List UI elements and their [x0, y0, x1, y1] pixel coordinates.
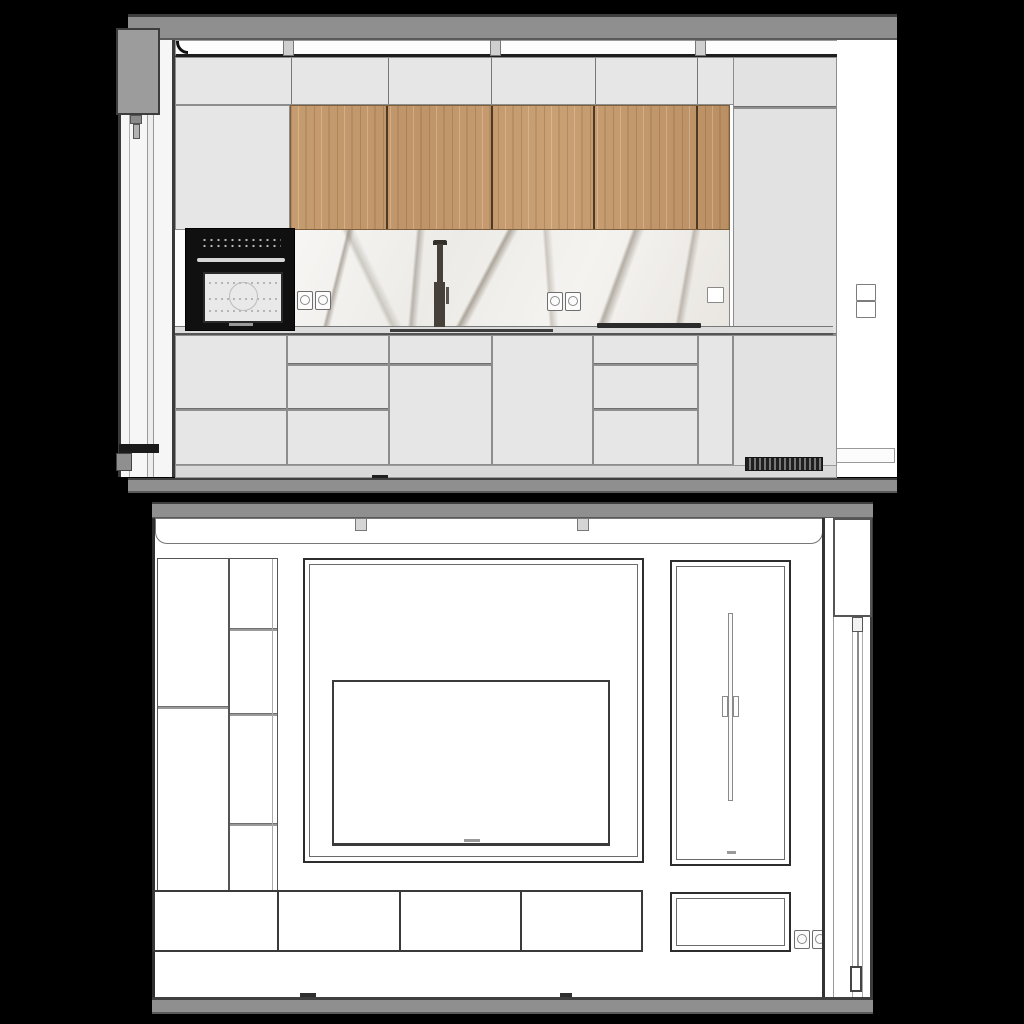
shelf-line — [230, 628, 277, 631]
panel-divider — [697, 58, 698, 104]
sink-inset-line — [390, 329, 553, 332]
shelf-frame-line — [272, 559, 273, 894]
media-ceiling-band — [152, 502, 873, 518]
cove-joint-tab — [283, 40, 294, 56]
media-base-doors — [153, 890, 643, 952]
backsplash-switch — [707, 287, 724, 303]
cove-joint-tab — [695, 40, 706, 56]
open-shelf-unit — [229, 558, 278, 895]
cove-joint-tab — [490, 40, 501, 56]
socket-outlet — [547, 292, 563, 311]
base-unit-drawers — [593, 335, 698, 465]
oven-window — [203, 272, 283, 323]
wood-door-gap — [386, 106, 388, 229]
oven-control-panel — [201, 237, 281, 249]
media-floor-band — [152, 997, 873, 1014]
built-in-oven — [185, 228, 295, 331]
oven-brand-mark — [229, 323, 253, 326]
framed-base-panel — [670, 892, 791, 952]
door-divider — [520, 892, 522, 950]
wall-light-switch — [856, 284, 876, 301]
tall-cabinet-column — [733, 57, 837, 466]
double-socket — [547, 292, 581, 311]
tall-cabinet-door-left — [175, 105, 290, 230]
socket-outlet — [794, 930, 810, 949]
drawing-canvas — [0, 0, 1024, 1024]
tv-brand-mark — [464, 839, 480, 842]
cooktop-inset-line — [597, 323, 701, 328]
double-socket — [297, 291, 331, 310]
right-wall — [837, 40, 897, 477]
drawer-divider — [288, 408, 388, 411]
panel-divider — [158, 706, 228, 709]
media-cove-strip — [155, 518, 823, 544]
window-bottom-handle — [119, 444, 159, 453]
door-divider — [277, 892, 279, 950]
door-divider — [399, 892, 401, 950]
blind-cord-lock — [130, 115, 142, 124]
blind-cord-lock — [852, 617, 863, 632]
cove-joint-tab — [577, 518, 589, 531]
blind-cord-weight — [850, 966, 862, 992]
wood-wall-cabinets — [290, 105, 730, 230]
door-bottom-mark — [727, 851, 736, 854]
oven-fan-circle — [229, 282, 258, 311]
right-wall-skirting — [834, 448, 895, 463]
base-unit-drawers — [287, 335, 389, 465]
kitchen-floor-band — [128, 478, 897, 493]
drawer-divider — [176, 408, 286, 411]
base-unit-door — [492, 335, 593, 465]
blind-cord — [857, 617, 859, 972]
panel-divider — [491, 58, 492, 104]
left-wall-panels — [157, 558, 229, 895]
socket-outlet — [315, 291, 331, 310]
wood-door-gap — [593, 106, 595, 229]
drawer-divider — [390, 363, 491, 366]
door-handle-grip — [722, 696, 728, 717]
base-unit-sink — [389, 335, 492, 465]
plinth — [175, 465, 837, 478]
faucet-body — [434, 282, 445, 327]
door-handle-grip — [733, 696, 739, 717]
window-sill-block — [116, 453, 132, 471]
shelf-line — [230, 823, 277, 826]
base-unit-drawers — [175, 335, 287, 465]
panel-divider — [291, 58, 292, 104]
panel-divider — [734, 106, 836, 109]
kitchen-ceiling-band — [128, 14, 897, 40]
socket-outlet — [297, 291, 313, 310]
roller-blind-box-right — [833, 518, 872, 617]
plinth-vent-grille — [745, 457, 823, 471]
faucet-lever — [446, 287, 449, 304]
wood-door-gap — [491, 106, 493, 229]
drawer-divider — [594, 408, 697, 411]
wall-light-switch — [856, 301, 876, 318]
wood-door-gap — [696, 106, 698, 229]
base-unit-filler — [698, 335, 733, 465]
marble-backsplash — [290, 230, 730, 326]
panel-divider — [595, 58, 596, 104]
drawer-divider — [594, 363, 697, 366]
cove-joint-tab — [355, 518, 367, 531]
panel-divider — [388, 58, 389, 104]
socket-outlet — [565, 292, 581, 311]
roller-blind-box-left — [116, 28, 160, 115]
shelf-line — [230, 713, 277, 716]
blind-cord-weight — [133, 124, 140, 139]
drawer-divider — [288, 363, 388, 366]
oven-handle — [197, 258, 285, 262]
faucet-stem — [437, 244, 443, 284]
tv-screen — [332, 680, 610, 846]
